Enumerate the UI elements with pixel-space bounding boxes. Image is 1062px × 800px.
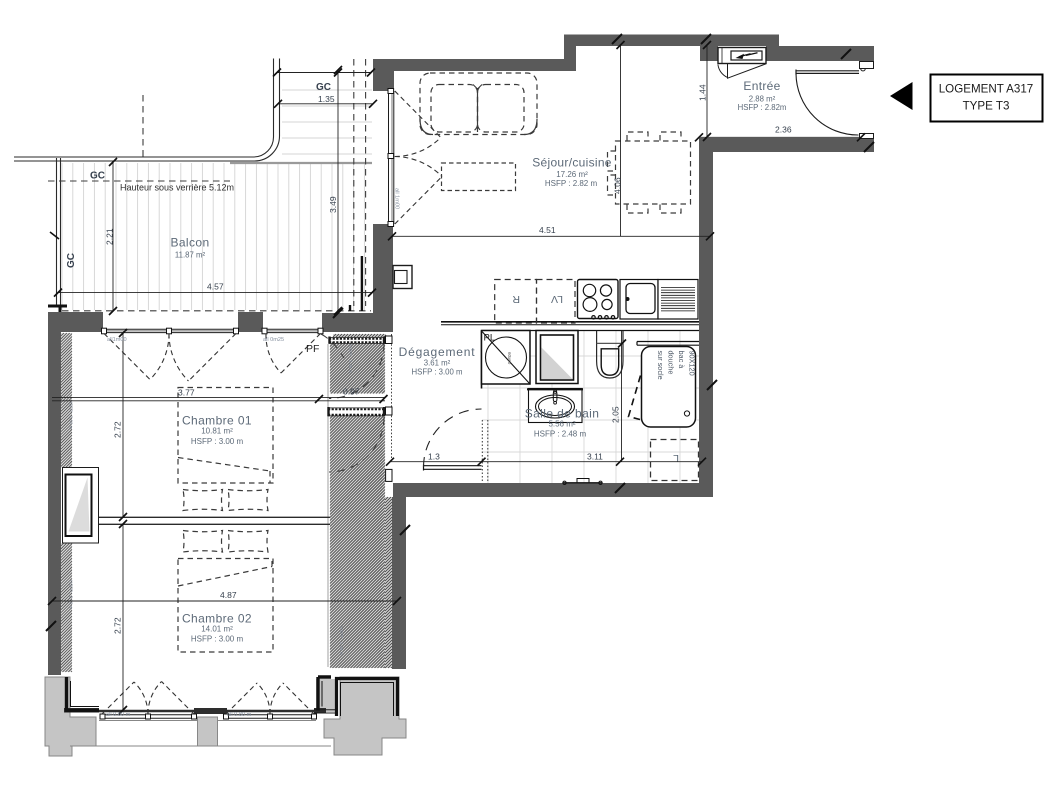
svg-text:Dégagement: Dégagement	[399, 345, 476, 359]
svg-text:3.11: 3.11	[587, 452, 603, 462]
svg-text:PL: PL	[484, 333, 496, 344]
svg-text:10.81 m²: 10.81 m²	[201, 427, 233, 436]
svg-text:4.87: 4.87	[220, 590, 237, 600]
svg-text:17.26 m²: 17.26 m²	[556, 170, 588, 179]
svg-text:Chambre 02: Chambre 02	[182, 612, 252, 626]
svg-text:Balcon: Balcon	[170, 236, 209, 250]
svg-text:Chambre 01: Chambre 01	[182, 414, 252, 428]
svg-text:4.51: 4.51	[539, 225, 556, 235]
svg-text:3.77: 3.77	[178, 388, 195, 398]
svg-text:Hauteur sous verrière 5.12m: Hauteur sous verrière 5.12m	[120, 183, 234, 193]
svg-text:R: R	[512, 293, 520, 305]
svg-text:HSFP : 3.00 m: HSFP : 3.00 m	[412, 368, 463, 377]
svg-text:HSFP : 2.82 m: HSFP : 2.82 m	[545, 179, 598, 188]
svg-text:HSFP : 3.00 m: HSFP : 3.00 m	[191, 635, 244, 644]
svg-text:all 0.80 m: all 0.80 m	[106, 712, 131, 718]
svg-text:all 0.80 m: all 0.80 m	[227, 712, 252, 718]
svg-text:GC: GC	[90, 171, 105, 182]
svg-text:2.36: 2.36	[775, 125, 792, 135]
svg-text:HSFP : 3.00 m: HSFP : 3.00 m	[191, 437, 244, 446]
svg-text:L: L	[673, 452, 679, 464]
svg-text:all1m00: all1m00	[107, 337, 127, 343]
svg-text:60x60: 60x60	[507, 352, 512, 365]
svg-text:2.88 m²: 2.88 m²	[749, 95, 776, 104]
svg-text:0.97: 0.97	[343, 387, 360, 397]
svg-text:HSFP : 2.60 m: HSFP : 2.60 m	[69, 580, 74, 610]
svg-text:2.21: 2.21	[105, 228, 115, 245]
svg-text:Séjour/cuisine: Séjour/cuisine	[532, 156, 612, 170]
svg-text:TYPE T3: TYPE T3	[963, 100, 1010, 113]
svg-text:Salle de bain: Salle de bain	[525, 406, 600, 420]
svg-text:bac à: bac à	[677, 351, 686, 370]
svg-text:90X120: 90X120	[688, 351, 697, 376]
svg-text:Entrée: Entrée	[743, 79, 780, 93]
svg-text:sur socle: sur socle	[656, 351, 665, 380]
svg-text:all 0m25: all 0m25	[263, 337, 284, 343]
svg-text:2.72: 2.72	[113, 617, 123, 634]
svg-text:3.49: 3.49	[328, 196, 338, 213]
svg-text:2.72: 2.72	[113, 421, 123, 438]
svg-text:all 1m00: all 1m00	[394, 188, 400, 209]
svg-text:HSFP : 2.48 m: HSFP : 2.48 m	[339, 626, 344, 656]
svg-text:HSFP : 2.48 m: HSFP : 2.48 m	[534, 429, 587, 438]
svg-text:GC: GC	[316, 82, 331, 93]
svg-text:GC: GC	[66, 253, 77, 268]
svg-text:4.57: 4.57	[207, 282, 224, 292]
svg-text:HSFP : 2.60 m: HSFP : 2.60 m	[69, 400, 74, 430]
svg-text:4.06: 4.06	[613, 177, 623, 194]
svg-text:5.56 m²: 5.56 m²	[548, 420, 575, 429]
svg-text:HSFP : 2.48 m: HSFP : 2.48 m	[348, 344, 353, 374]
svg-text:1.3: 1.3	[428, 452, 440, 462]
svg-text:douche: douche	[667, 351, 676, 375]
svg-text:14.01 m²: 14.01 m²	[201, 625, 233, 634]
svg-text:PF: PF	[306, 343, 319, 355]
svg-text:1.35: 1.35	[318, 94, 335, 104]
svg-text:HSFP : 2.82m: HSFP : 2.82m	[738, 103, 787, 112]
svg-text:1.44: 1.44	[698, 84, 708, 101]
svg-text:LOGEMENT A317: LOGEMENT A317	[939, 83, 1034, 96]
svg-text:3.61 m²: 3.61 m²	[424, 359, 451, 368]
svg-text:2.05: 2.05	[611, 406, 621, 423]
svg-text:11.87 m²: 11.87 m²	[175, 251, 206, 260]
svg-text:LV: LV	[551, 293, 563, 305]
